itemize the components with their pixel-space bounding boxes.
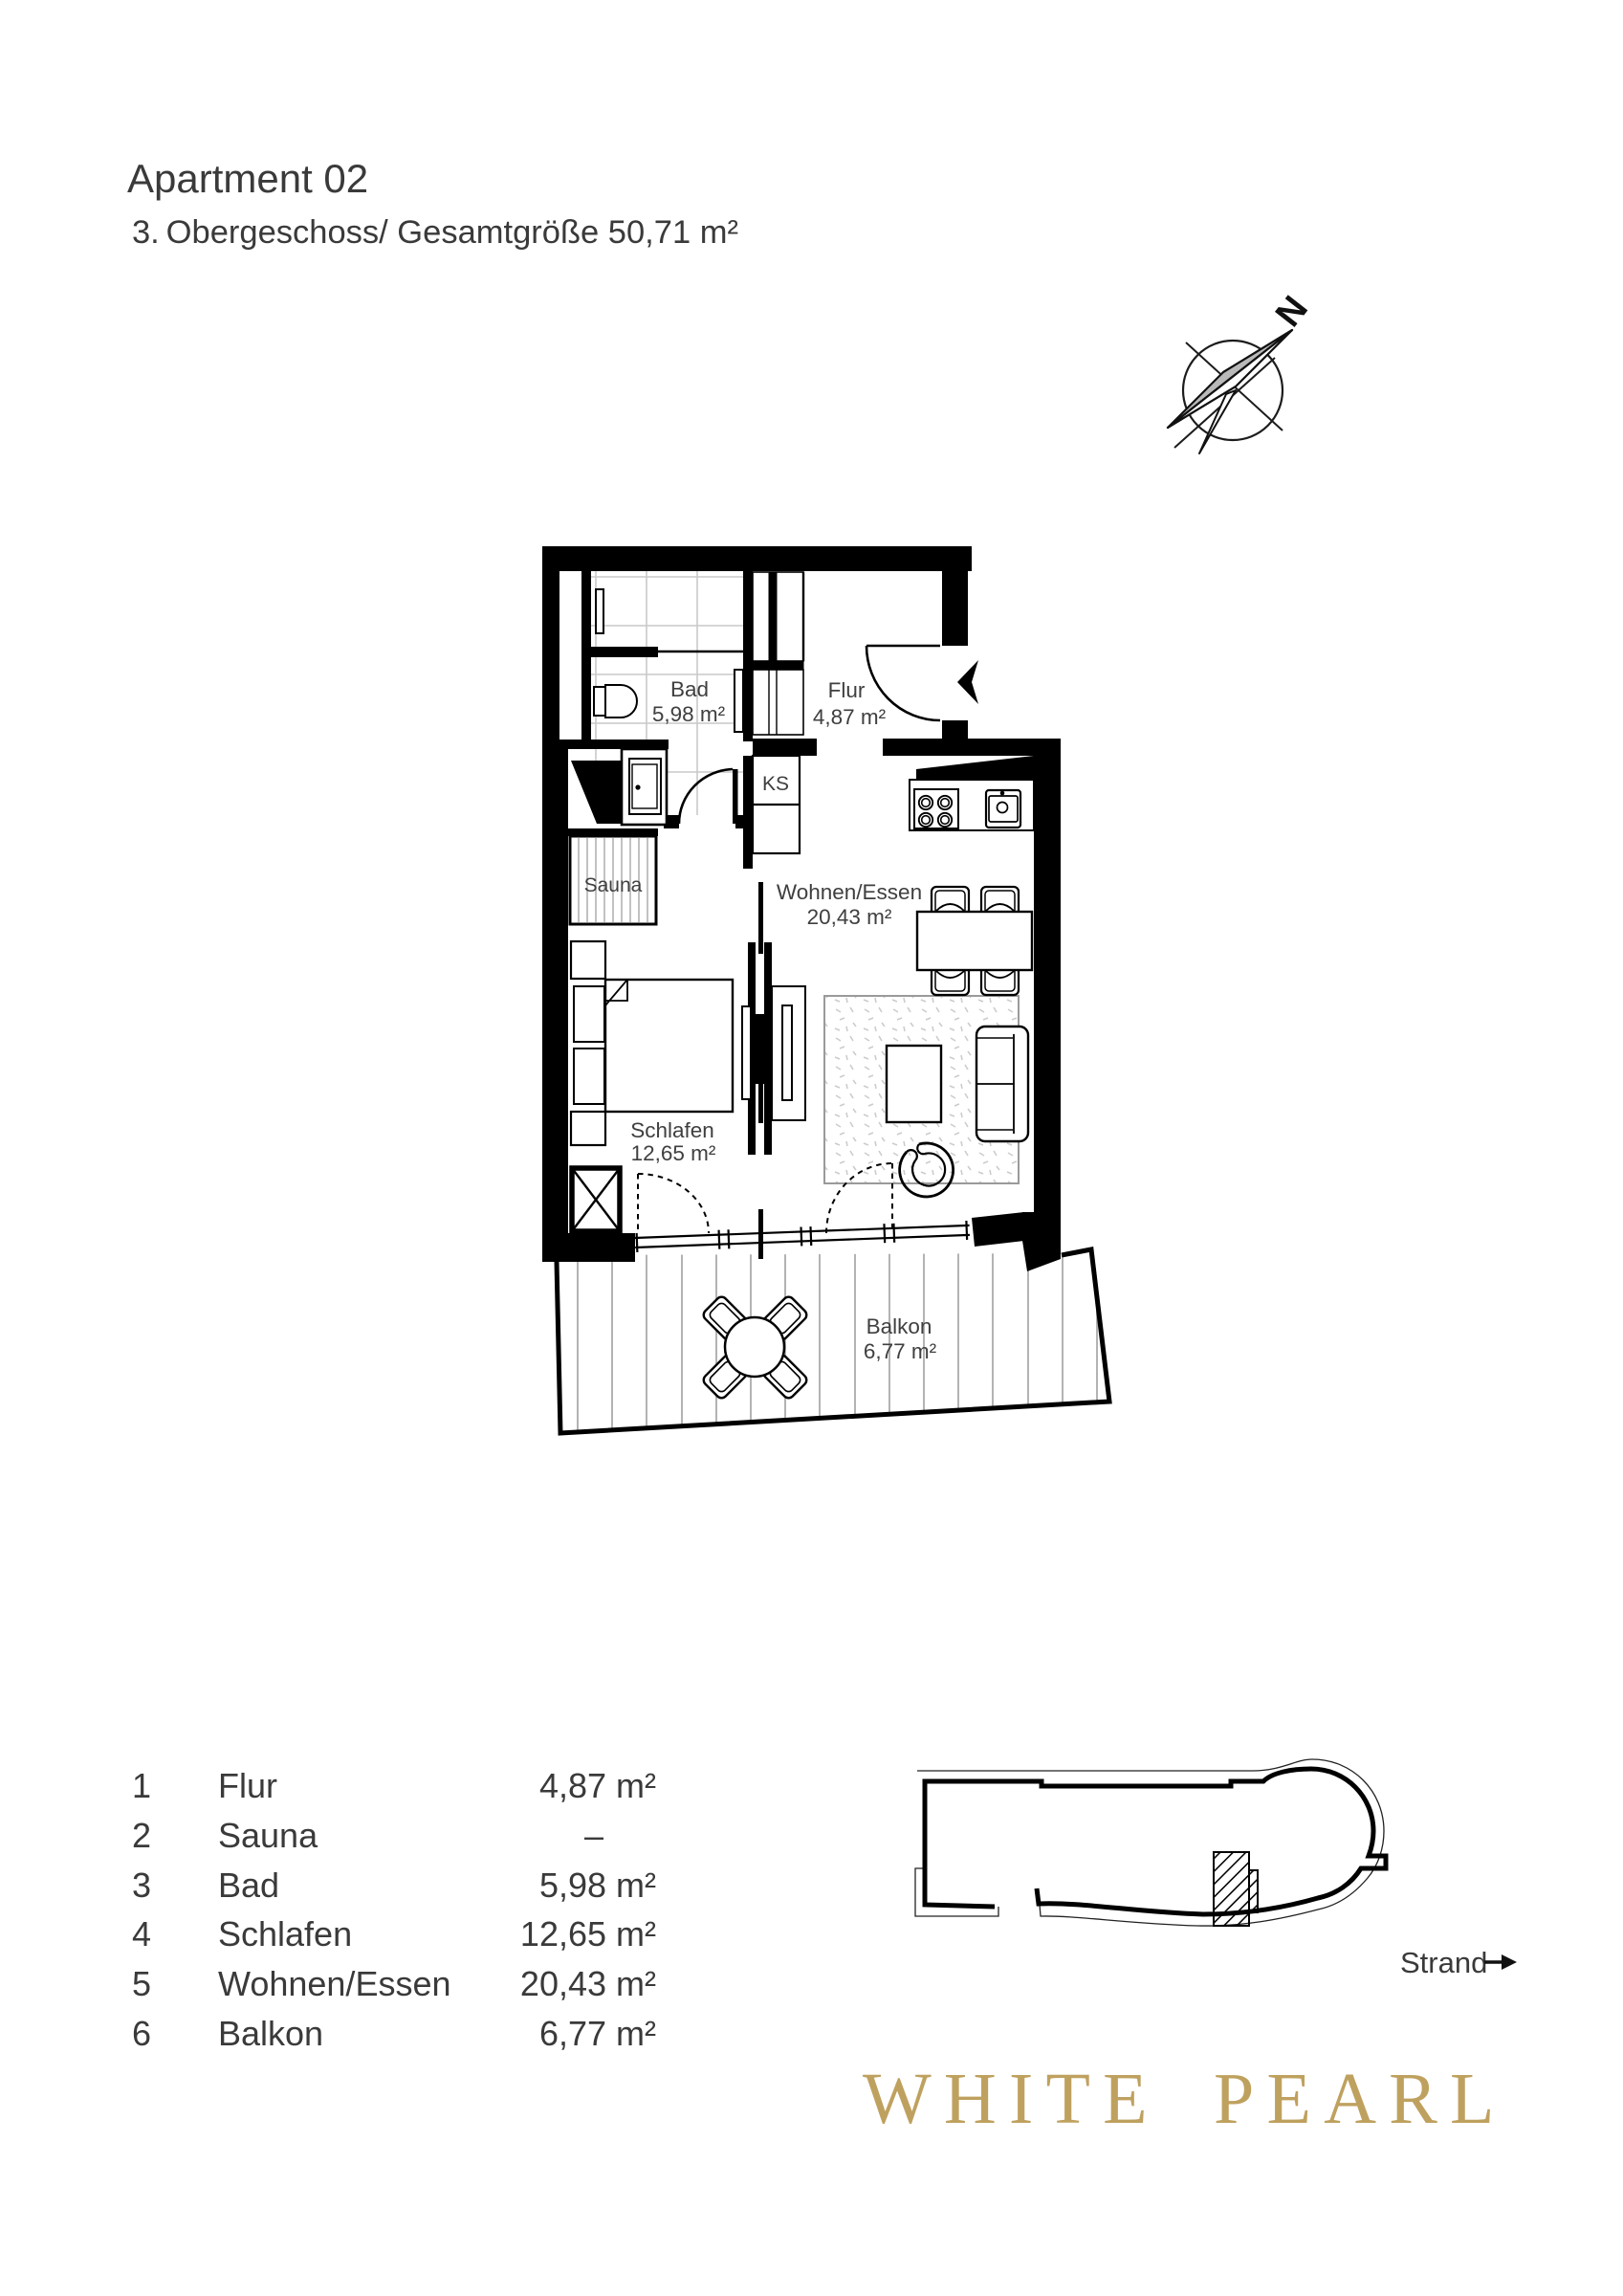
svg-text:12,65 m²: 12,65 m² xyxy=(631,1141,716,1165)
svg-text:Schlafen: Schlafen xyxy=(218,1914,352,1954)
svg-text:Balkon: Balkon xyxy=(218,2014,323,2053)
svg-text:1: 1 xyxy=(132,1766,151,1805)
svg-text:Sauna: Sauna xyxy=(218,1816,318,1855)
svg-text:5,98 m²: 5,98 m² xyxy=(539,1865,656,1905)
svg-text:Apartment 02: Apartment 02 xyxy=(127,156,368,201)
svg-text:Strand: Strand xyxy=(1400,1946,1487,1979)
svg-text:5,98 m²: 5,98 m² xyxy=(652,702,726,726)
svg-text:2: 2 xyxy=(132,1816,151,1855)
svg-text:6: 6 xyxy=(132,2014,151,2053)
svg-text:Wohnen/Essen: Wohnen/Essen xyxy=(777,880,922,904)
svg-text:4,87 m²: 4,87 m² xyxy=(539,1766,656,1805)
svg-text:Wohnen/Essen: Wohnen/Essen xyxy=(218,1964,451,2003)
svg-text:Schlafen: Schlafen xyxy=(630,1118,714,1142)
svg-text:12,65 m²: 12,65 m² xyxy=(520,1914,656,1954)
svg-text:20,43 m²: 20,43 m² xyxy=(807,905,892,929)
svg-text:KS: KS xyxy=(762,773,789,795)
svg-text:Flur: Flur xyxy=(218,1766,277,1805)
svg-text:–: – xyxy=(584,1816,603,1855)
svg-text:N: N xyxy=(1268,289,1316,334)
svg-text:3: 3 xyxy=(132,1865,151,1905)
svg-text:6,77 m²: 6,77 m² xyxy=(539,2014,656,2053)
svg-text:4,87 m²: 4,87 m² xyxy=(813,705,887,729)
svg-text:WHITE PEARL: WHITE PEARL xyxy=(863,2059,1507,2139)
svg-text:4: 4 xyxy=(132,1914,151,1954)
svg-text:Bad: Bad xyxy=(670,677,709,701)
svg-text:Sauna: Sauna xyxy=(584,874,643,896)
svg-text:Flur: Flur xyxy=(828,678,866,702)
svg-text:Balkon: Balkon xyxy=(866,1314,932,1338)
svg-text:6,77 m²: 6,77 m² xyxy=(864,1339,937,1363)
svg-text:3. Obergeschoss/ Gesamtgröße 5: 3. Obergeschoss/ Gesamtgröße 50,71 m² xyxy=(132,214,738,251)
svg-text:20,43 m²: 20,43 m² xyxy=(520,1964,656,2003)
svg-text:5: 5 xyxy=(132,1964,151,2003)
svg-text:Bad: Bad xyxy=(218,1865,279,1905)
